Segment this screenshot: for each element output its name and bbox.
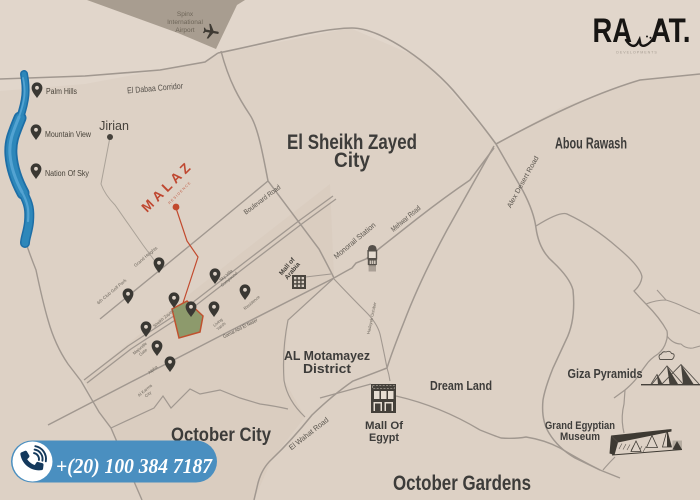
svg-text:Palm Hills: Palm Hills xyxy=(46,87,77,96)
svg-text:Giza Pyramids: Giza Pyramids xyxy=(568,367,643,381)
svg-text:Mall Of: Mall Of xyxy=(365,420,403,432)
svg-text:District: District xyxy=(303,361,352,376)
svg-text:International: International xyxy=(167,19,203,26)
svg-text:Dream Land: Dream Land xyxy=(430,379,492,393)
svg-text:Jirian: Jirian xyxy=(99,119,129,133)
svg-text:RA: RA xyxy=(593,12,633,50)
svg-text:Mountain View: Mountain View xyxy=(45,130,91,139)
svg-text:October Gardens: October Gardens xyxy=(393,471,531,495)
svg-text:Abou Rawash: Abou Rawash xyxy=(555,136,627,153)
svg-text:Nation Of Sky: Nation Of Sky xyxy=(45,169,89,178)
svg-text:City: City xyxy=(334,149,370,172)
svg-text:DEVELOPMENTS: DEVELOPMENTS xyxy=(616,51,658,55)
svg-text:+(20) 100 384 7187: +(20) 100 384 7187 xyxy=(56,454,213,478)
svg-text:Airport: Airport xyxy=(175,27,194,34)
svg-text:Spinx: Spinx xyxy=(177,11,194,18)
svg-text:Museum: Museum xyxy=(560,431,600,443)
svg-text:Egypt: Egypt xyxy=(369,432,399,444)
